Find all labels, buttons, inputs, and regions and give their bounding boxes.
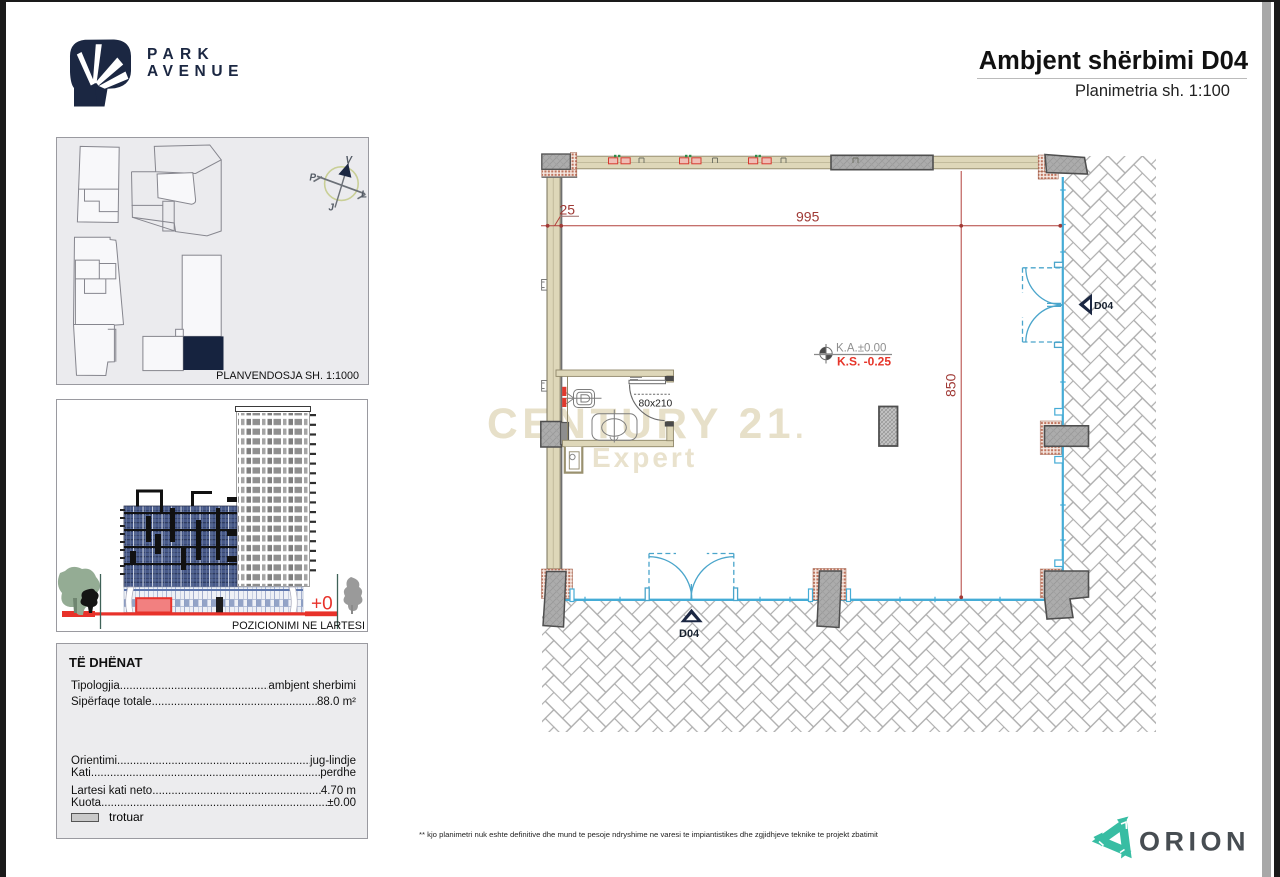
svg-text:ORION: ORION	[1139, 827, 1250, 857]
svg-text:P: P	[309, 173, 316, 184]
svg-text:D04: D04	[1094, 300, 1113, 312]
svg-text:850: 850	[943, 373, 959, 397]
svg-text:J: J	[328, 203, 334, 214]
svg-text:80x210: 80x210	[639, 398, 673, 409]
svg-text:K.S. -0.25: K.S. -0.25	[837, 355, 891, 369]
svg-text:K.A.±0.00: K.A.±0.00	[836, 343, 886, 355]
svg-text:995: 995	[796, 209, 820, 225]
svg-text:+0: +0	[311, 594, 333, 615]
svg-text:D04: D04	[679, 628, 700, 640]
svg-text:25: 25	[560, 201, 576, 217]
svg-text:L: L	[361, 189, 367, 200]
